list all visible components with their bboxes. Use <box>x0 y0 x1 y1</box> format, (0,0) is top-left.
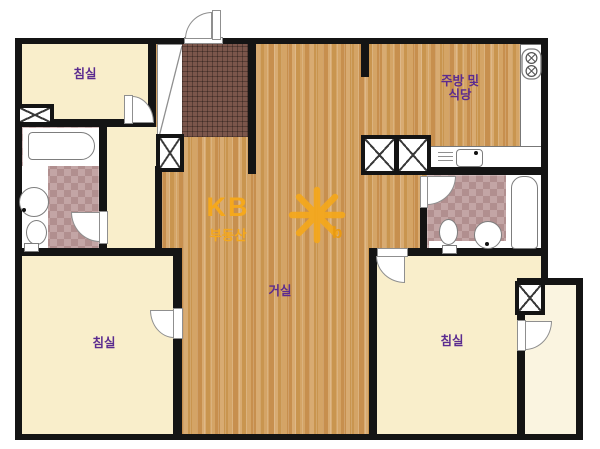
closet-diagonal-line <box>158 45 183 138</box>
wall-bathroom1-right-a <box>99 127 107 212</box>
kitchen-sink <box>456 149 483 167</box>
wall-outer-bottom <box>15 434 583 440</box>
wall-bedroom2-right-b <box>517 350 525 440</box>
label-living-room: 거실 <box>240 284 320 298</box>
toilet-left-tank <box>24 243 39 252</box>
entry-tile-floor <box>182 44 248 137</box>
wall-outer-right-lower <box>576 278 583 440</box>
bathtub-left <box>28 132 95 160</box>
label-bedroom-bottom-right: 침실 <box>412 334 492 348</box>
label-kitchen-dining: 주방 및 식당 <box>405 74 515 103</box>
kb-sub-text: 부동산 <box>190 224 266 244</box>
toilet-right-tank <box>442 245 457 254</box>
label-text: 거실 <box>268 284 291 298</box>
stove-burners <box>521 48 543 81</box>
wall-living-left-b <box>173 338 182 440</box>
kb-brand-text: KB <box>190 194 266 221</box>
label-text: 침실 <box>73 67 96 81</box>
floor-plan: 침실 주방 및 식당 거실 침실 침실 KB 부동산 b <box>0 0 600 449</box>
toilet-left-bowl <box>26 220 47 245</box>
wall-outer-top <box>15 38 548 44</box>
entry-closet <box>157 44 184 139</box>
label-bedroom-bottom-left: 침실 <box>64 336 144 350</box>
label-line2: 식당 <box>405 88 515 102</box>
sink-left <box>19 187 49 217</box>
pillar-box-kitchen-pair <box>361 135 431 175</box>
label-line1: 주방 및 <box>405 74 515 88</box>
bedroom3-door-leaf <box>173 308 183 339</box>
wall-entry-right <box>248 38 256 174</box>
label-text: 침실 <box>92 336 115 350</box>
sink-right-faucet-dot <box>485 242 489 246</box>
hallway <box>107 127 157 248</box>
wall-bedroom2-left <box>369 248 377 440</box>
pillar-x-right <box>399 139 428 171</box>
pillar-x-left <box>365 139 394 171</box>
wall-outer-left <box>15 38 22 440</box>
kb-star-logo: b <box>286 184 350 248</box>
entrance-door-arc <box>185 12 212 39</box>
window-box-bedroom1 <box>16 104 54 126</box>
bathroom1-door-leaf <box>99 211 108 244</box>
toilet-right-bowl <box>439 219 458 245</box>
pillar-box-balcony <box>515 281 545 315</box>
bathtub-right <box>511 176 538 249</box>
pillar-box-hall <box>156 134 184 172</box>
entrance-door-leaf <box>212 10 221 40</box>
wall-kitchen-left <box>361 38 369 77</box>
sink-left-faucet-dot <box>22 208 26 212</box>
kb-watermark-text: KB 부동산 <box>190 194 266 244</box>
wall-kitchen-bottom <box>427 167 548 175</box>
wall-living-left-a <box>173 256 182 308</box>
wall-bedroom2-top-b <box>407 248 541 256</box>
wall-hall-right <box>155 166 162 252</box>
kb-star-letter: b <box>332 223 342 242</box>
label-text: 침실 <box>440 334 463 348</box>
kitchen-drainboard <box>438 152 453 164</box>
label-bedroom-top-left: 침실 <box>45 67 125 81</box>
kitchen-sink-faucet-dot <box>474 151 478 155</box>
